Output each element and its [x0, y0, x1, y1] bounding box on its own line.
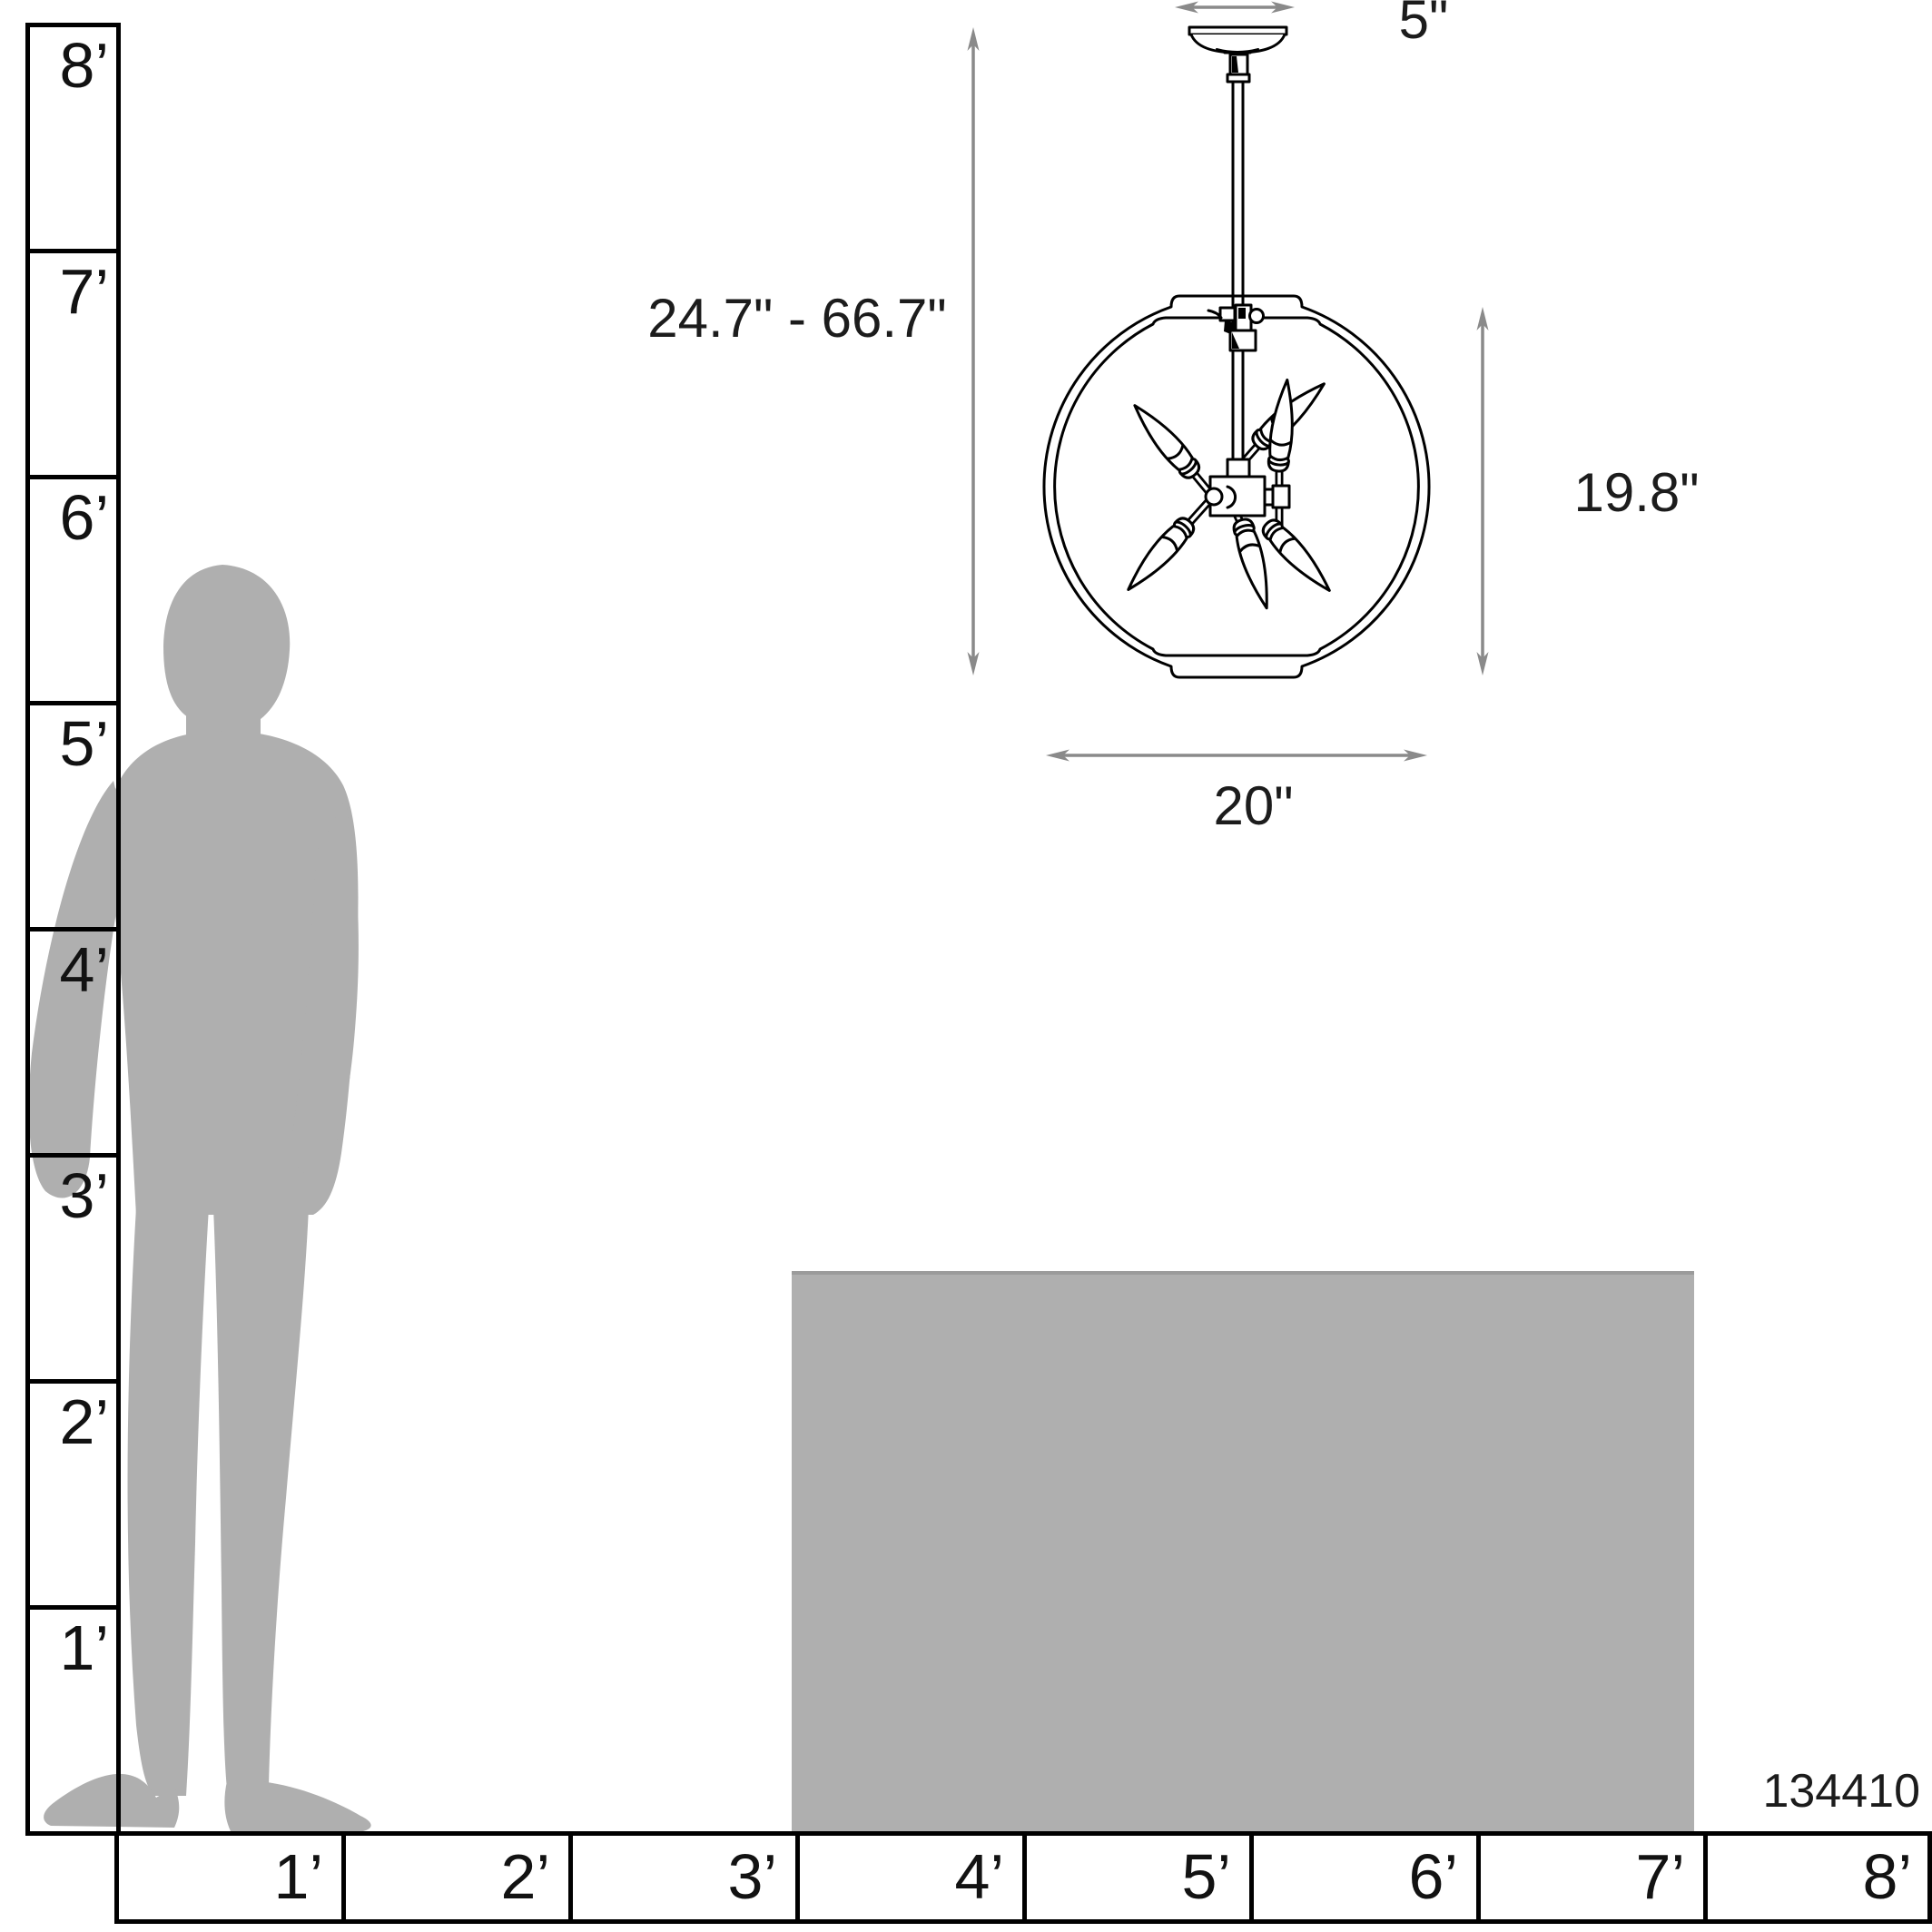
hruler-label-8ft: 8’ [1708, 1845, 1912, 1908]
vruler-mark-6ft [25, 475, 121, 479]
dimension-arrows [968, 2, 1489, 762]
hruler-label-3ft: 3’ [573, 1845, 777, 1908]
table-block [792, 1271, 1694, 1831]
canopy-width-label: 5" [1374, 0, 1474, 47]
hruler-label-1ft: 1’ [119, 1845, 323, 1908]
vruler-mark-8ft [25, 23, 121, 27]
vruler-label-7ft: 7’ [27, 260, 109, 323]
hruler-label-2ft: 2’ [346, 1845, 550, 1908]
height-range-label: 24.7" - 66.7" [634, 291, 961, 346]
diagram-artwork [0, 0, 1932, 1932]
bulb-upper-right-inner [1267, 379, 1297, 472]
product-code: 134410 [1752, 1768, 1920, 1815]
vruler-label-4ft: 4’ [27, 938, 109, 1001]
vruler-label-8ft: 8’ [27, 34, 109, 97]
vruler-label-5ft: 5’ [27, 712, 109, 775]
chandelier-drawing [1044, 27, 1429, 677]
hruler-label-4ft: 4’ [800, 1845, 1004, 1908]
vruler-mark-1ft [25, 1605, 121, 1610]
canopy [1189, 27, 1286, 34]
fixture-height-label: 19.8" [1562, 466, 1711, 520]
vruler-mark-4ft [25, 927, 121, 931]
vruler-mark-3ft [25, 1153, 121, 1158]
hruler-label-6ft: 6’ [1254, 1845, 1458, 1908]
fixture-width-label: 20" [1178, 779, 1328, 833]
ground-line [25, 1831, 1932, 1836]
bulb-lower-left [1120, 515, 1198, 596]
hruler-label-5ft: 5’ [1027, 1845, 1231, 1908]
vruler-mark-5ft [25, 701, 121, 705]
vruler-label-2ft: 2’ [27, 1390, 109, 1454]
bulb-upper-left [1127, 399, 1203, 481]
vruler-label-6ft: 6’ [27, 486, 109, 549]
dimension-diagram: 8’ 7’ 6’ 5’ 4’ 3’ 2’ 1’ 1’ 2’ 3’ 4’ 5’ 6… [0, 0, 1932, 1932]
bulb-lower-right [1259, 517, 1337, 598]
hruler-label-7ft: 7’ [1481, 1845, 1685, 1908]
vruler-label-3ft: 3’ [27, 1164, 109, 1227]
vruler-mark-7ft [25, 249, 121, 253]
vruler-mark-2ft [25, 1379, 121, 1384]
vruler-label-1ft: 1’ [27, 1616, 109, 1680]
hruler-div-8 [1927, 1831, 1932, 1924]
